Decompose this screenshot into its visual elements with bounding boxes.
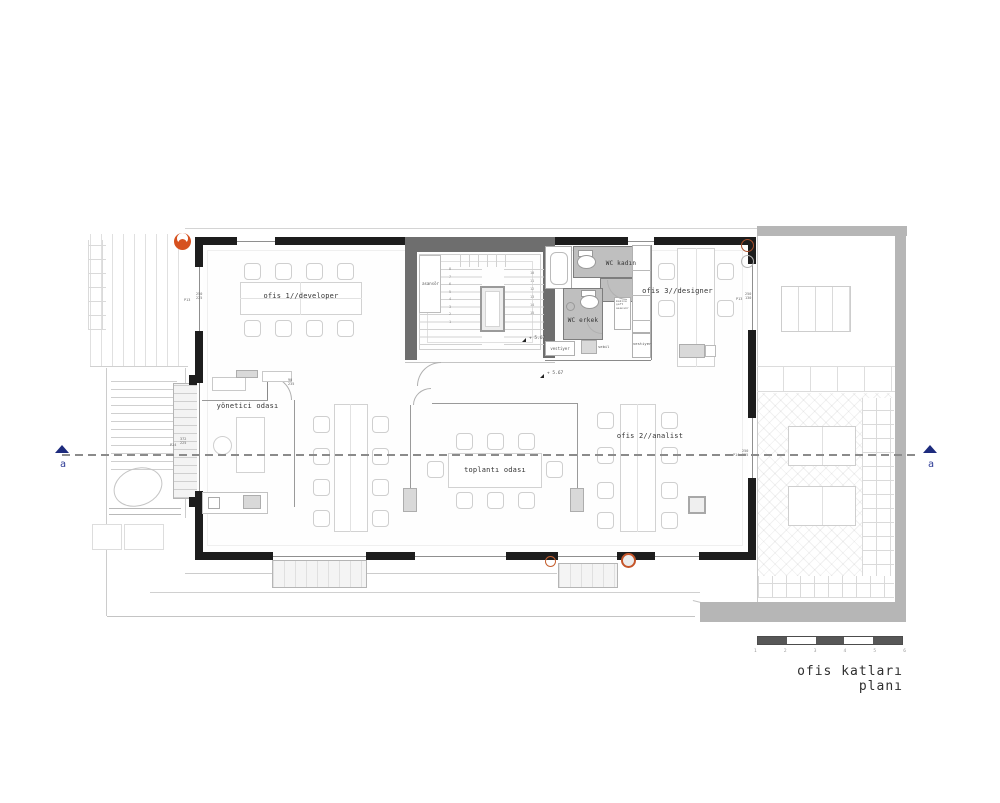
partition bbox=[651, 245, 652, 360]
chair bbox=[372, 479, 389, 496]
paver-border-bottom bbox=[758, 576, 894, 598]
section-arrow-right bbox=[923, 445, 937, 453]
balcony-deck bbox=[272, 560, 367, 588]
downspout-ring bbox=[545, 556, 556, 567]
window-tag: P13 bbox=[736, 297, 742, 301]
skylight-glazing-b bbox=[757, 366, 895, 392]
core-wall-north bbox=[405, 237, 555, 252]
toilet bbox=[577, 255, 596, 269]
elevator-label: asansör bbox=[420, 281, 441, 286]
section-label-right: a bbox=[928, 459, 934, 470]
step-number: 12 bbox=[530, 288, 534, 292]
sink bbox=[566, 302, 575, 311]
step-number: 11 bbox=[530, 280, 534, 284]
radiator-column bbox=[403, 488, 417, 512]
chair bbox=[597, 482, 614, 499]
chair bbox=[717, 263, 734, 280]
stair-landing-line bbox=[109, 508, 181, 509]
stove bbox=[243, 495, 261, 509]
chair bbox=[372, 416, 389, 433]
partition bbox=[202, 400, 268, 401]
stair-void bbox=[485, 291, 500, 327]
room-label-ofis2: ofis 2//analist bbox=[615, 432, 685, 440]
step-number: 13 bbox=[530, 296, 534, 300]
scale-tick: 2 bbox=[784, 649, 787, 654]
site-structure bbox=[124, 524, 164, 550]
step-number: 2 bbox=[449, 313, 451, 317]
wall-segment bbox=[195, 237, 203, 267]
scale-segment bbox=[873, 637, 902, 644]
printer-tray bbox=[705, 345, 716, 357]
chair bbox=[372, 510, 389, 527]
terrace-edge-line bbox=[150, 592, 700, 593]
section-arrow-left bbox=[55, 445, 69, 453]
chair bbox=[661, 412, 678, 429]
room-label-ofis1: ofis 1//developer bbox=[240, 292, 362, 300]
level-marker-icon bbox=[540, 374, 544, 378]
chair bbox=[518, 492, 535, 509]
level-marker-icon bbox=[522, 338, 526, 342]
chair bbox=[275, 263, 292, 280]
step-number: 8 bbox=[449, 268, 451, 272]
skylight-mullion bbox=[822, 427, 823, 465]
step-number: 10 bbox=[530, 272, 534, 276]
vestiyer-label-a: vestiyer bbox=[546, 346, 574, 351]
skylight-mullion bbox=[822, 487, 823, 525]
scale-segment bbox=[816, 637, 845, 644]
desk-ofis2 bbox=[620, 404, 656, 532]
room-label-ofis3: ofis 3//designer bbox=[635, 287, 720, 295]
core-open-edge bbox=[405, 362, 555, 363]
window bbox=[628, 239, 654, 244]
skylight bbox=[788, 486, 856, 526]
step-number: 14 bbox=[530, 304, 534, 308]
chair bbox=[487, 492, 504, 509]
scale-bar bbox=[757, 636, 903, 645]
step-number: 6 bbox=[449, 283, 451, 287]
downspout-ring bbox=[621, 553, 636, 568]
site-structure bbox=[92, 524, 122, 550]
wall-segment bbox=[748, 330, 756, 418]
chair bbox=[658, 300, 675, 317]
marker-orange-inner bbox=[178, 239, 187, 248]
chair bbox=[597, 412, 614, 429]
window-dim: 250 130 bbox=[745, 292, 751, 300]
chair bbox=[306, 263, 323, 280]
window bbox=[655, 554, 699, 559]
stair-flight-top bbox=[460, 254, 506, 267]
core-wall-west bbox=[405, 252, 417, 360]
cabinet bbox=[236, 370, 258, 378]
chair bbox=[661, 482, 678, 499]
stair-flight-right bbox=[504, 268, 544, 345]
sebil-label: sebil bbox=[598, 344, 609, 349]
balcony-deck bbox=[558, 563, 618, 588]
step-number: 15 bbox=[530, 312, 534, 316]
skylight bbox=[788, 426, 856, 466]
downspout-ring bbox=[741, 239, 754, 252]
window bbox=[415, 554, 506, 559]
bathtub bbox=[550, 252, 568, 285]
cabinet bbox=[212, 377, 246, 391]
chair bbox=[661, 512, 678, 529]
chair bbox=[244, 320, 261, 337]
drawing-title: ofis katları planı bbox=[763, 664, 903, 694]
chair bbox=[518, 433, 535, 450]
chair bbox=[313, 416, 330, 433]
partition bbox=[410, 405, 411, 488]
scale-ticks: 1 2 3 4 5 6 bbox=[754, 649, 906, 654]
scale-segment bbox=[787, 637, 816, 644]
wall-segment bbox=[195, 331, 203, 383]
wall-segment bbox=[366, 552, 415, 560]
column-ring bbox=[741, 255, 754, 268]
section-line bbox=[62, 454, 920, 456]
shaft-label: makine şaft asansör bbox=[616, 300, 629, 310]
room-label-yonetici: yönetici odası bbox=[200, 402, 295, 410]
step-number: 4 bbox=[449, 298, 451, 302]
step-number: 3 bbox=[449, 306, 451, 310]
window-tag: P13 bbox=[184, 298, 190, 302]
step-number: 1 bbox=[449, 321, 451, 325]
radiator-column bbox=[570, 488, 584, 512]
paver-border-right bbox=[862, 398, 894, 593]
chair bbox=[456, 433, 473, 450]
chair bbox=[427, 461, 444, 478]
wall-segment bbox=[275, 237, 406, 245]
desk-divider bbox=[637, 404, 638, 532]
window-dim: 250 225 bbox=[196, 292, 202, 300]
scale-segment bbox=[844, 637, 873, 644]
wall-segment bbox=[748, 478, 756, 560]
window bbox=[750, 418, 755, 478]
desk-yonetici bbox=[236, 417, 265, 473]
chair bbox=[546, 461, 563, 478]
chair bbox=[306, 320, 323, 337]
floor-box bbox=[688, 496, 706, 514]
chair bbox=[337, 263, 354, 280]
cabinet-divider bbox=[632, 320, 651, 321]
chair bbox=[213, 436, 232, 455]
scale-tick: 4 bbox=[844, 649, 847, 654]
window bbox=[237, 239, 275, 244]
room-label-wc-kadin: WC kadın bbox=[600, 260, 642, 267]
terrace-shadow-bottom bbox=[700, 602, 906, 622]
scale-tick: 3 bbox=[814, 649, 817, 654]
partition bbox=[545, 360, 651, 361]
chair bbox=[313, 448, 330, 465]
toilet bbox=[580, 295, 599, 309]
ground-line bbox=[107, 616, 695, 617]
partition bbox=[432, 403, 577, 404]
wall-segment bbox=[195, 552, 273, 560]
balcony-rail-line bbox=[185, 573, 557, 574]
window bbox=[273, 554, 366, 559]
bath-room bbox=[545, 246, 572, 289]
scale-segment bbox=[758, 637, 787, 644]
chair bbox=[717, 300, 734, 317]
vestiyer-label-b: vestiyer bbox=[633, 341, 650, 346]
chair bbox=[337, 320, 354, 337]
level-label: + 5.67 bbox=[547, 371, 563, 376]
chair bbox=[313, 479, 330, 496]
chair bbox=[456, 492, 473, 509]
window-tag: P14 bbox=[170, 443, 176, 447]
desk-divider bbox=[350, 404, 351, 532]
terrace-shadow-top bbox=[757, 226, 907, 236]
terrace-shadow-right bbox=[895, 226, 906, 604]
printer bbox=[679, 344, 705, 358]
floor-plan-sheet: asansör 8 7 6 5 4 3 2 1 10 11 12 13 14 1… bbox=[0, 0, 1000, 803]
chair bbox=[275, 320, 292, 337]
wall-segment bbox=[699, 552, 756, 560]
stair-landing-line bbox=[109, 514, 181, 515]
chair bbox=[597, 512, 614, 529]
sebil-box bbox=[581, 340, 597, 354]
stair-core-wall bbox=[480, 286, 505, 332]
chair bbox=[313, 510, 330, 527]
level-label: + 5.67 bbox=[529, 336, 545, 341]
section-label-left: a bbox=[60, 459, 66, 470]
cabinet-divider bbox=[632, 270, 651, 271]
chair bbox=[658, 263, 675, 280]
scale-tick: 1 bbox=[754, 649, 757, 654]
room-label-toplanti: toplantı odası bbox=[448, 466, 542, 474]
scale-tick: 5 bbox=[873, 649, 876, 654]
skylight-glazing-a bbox=[781, 286, 851, 332]
brick-strip bbox=[88, 240, 106, 330]
cabinet-divider bbox=[632, 295, 651, 296]
partition bbox=[577, 403, 578, 488]
wall-segment bbox=[554, 237, 628, 245]
chair bbox=[487, 433, 504, 450]
chair bbox=[372, 448, 389, 465]
sink bbox=[208, 497, 220, 509]
step-number: 5 bbox=[449, 291, 451, 295]
downspout-marker bbox=[174, 233, 192, 251]
door-dim: 90 235 bbox=[288, 378, 294, 386]
step-number: 7 bbox=[449, 276, 451, 280]
desk-central bbox=[334, 404, 368, 532]
chair bbox=[244, 263, 261, 280]
window-dim: 372 225 bbox=[180, 437, 186, 445]
window bbox=[558, 554, 617, 559]
scale-tick: 6 bbox=[903, 649, 906, 654]
